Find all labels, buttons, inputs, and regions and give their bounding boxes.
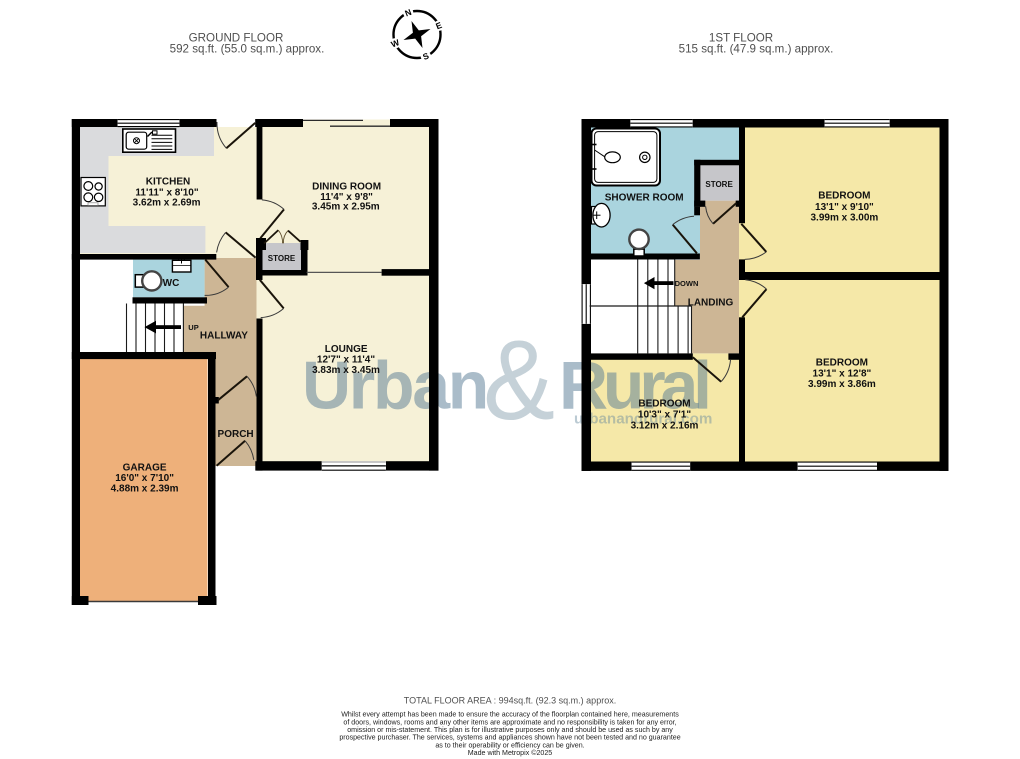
- svg-text:3.62m x 2.69m: 3.62m x 2.69m: [133, 198, 201, 209]
- svg-text:&: &: [483, 317, 555, 443]
- svg-text:PORCH: PORCH: [218, 429, 254, 440]
- svg-text:BEDROOM: BEDROOM: [816, 358, 868, 369]
- svg-text:3.83m x 3.45m: 3.83m x 3.45m: [312, 365, 380, 376]
- svg-text:UP: UP: [188, 323, 198, 332]
- svg-text:KITCHEN: KITCHEN: [146, 177, 190, 188]
- svg-text:10'3" x 7'1": 10'3" x 7'1": [638, 410, 691, 421]
- svg-text:DOWN: DOWN: [675, 279, 699, 288]
- svg-text:13'1" x 12'8": 13'1" x 12'8": [813, 369, 872, 380]
- svg-text:SHOWER ROOM: SHOWER ROOM: [605, 192, 684, 203]
- svg-text:13'1" x 9'10": 13'1" x 9'10": [815, 202, 874, 213]
- svg-text:LOUNGE: LOUNGE: [325, 344, 368, 355]
- svg-text:3.99m x 3.86m: 3.99m x 3.86m: [808, 379, 876, 390]
- svg-text:STORE: STORE: [705, 180, 733, 189]
- svg-text:4.88m x 2.39m: 4.88m x 2.39m: [111, 483, 179, 494]
- svg-text:3.99m x 3.00m: 3.99m x 3.00m: [810, 213, 878, 224]
- svg-text:WC: WC: [163, 278, 180, 289]
- svg-text:Made with Metropix ©2025: Made with Metropix ©2025: [468, 749, 553, 757]
- svg-text:STORE: STORE: [268, 254, 296, 263]
- svg-text:3.12m x 2.16m: 3.12m x 2.16m: [631, 420, 699, 431]
- svg-text:LANDING: LANDING: [688, 298, 734, 309]
- svg-text:BEDROOM: BEDROOM: [818, 191, 870, 202]
- svg-text:GARAGE: GARAGE: [123, 462, 167, 473]
- svg-text:592 sq.ft. (55.0 sq.m.) approx: 592 sq.ft. (55.0 sq.m.) approx.: [170, 43, 325, 56]
- svg-text:TOTAL FLOOR AREA : 994sq.ft. (: TOTAL FLOOR AREA : 994sq.ft. (92.3 sq.m.…: [404, 696, 616, 706]
- svg-text:3.45m x 2.95m: 3.45m x 2.95m: [312, 201, 380, 212]
- svg-text:HALLWAY: HALLWAY: [200, 331, 248, 342]
- svg-text:515 sq.ft. (47.9 sq.m.) approx: 515 sq.ft. (47.9 sq.m.) approx.: [679, 43, 834, 56]
- svg-text:BEDROOM: BEDROOM: [638, 399, 690, 410]
